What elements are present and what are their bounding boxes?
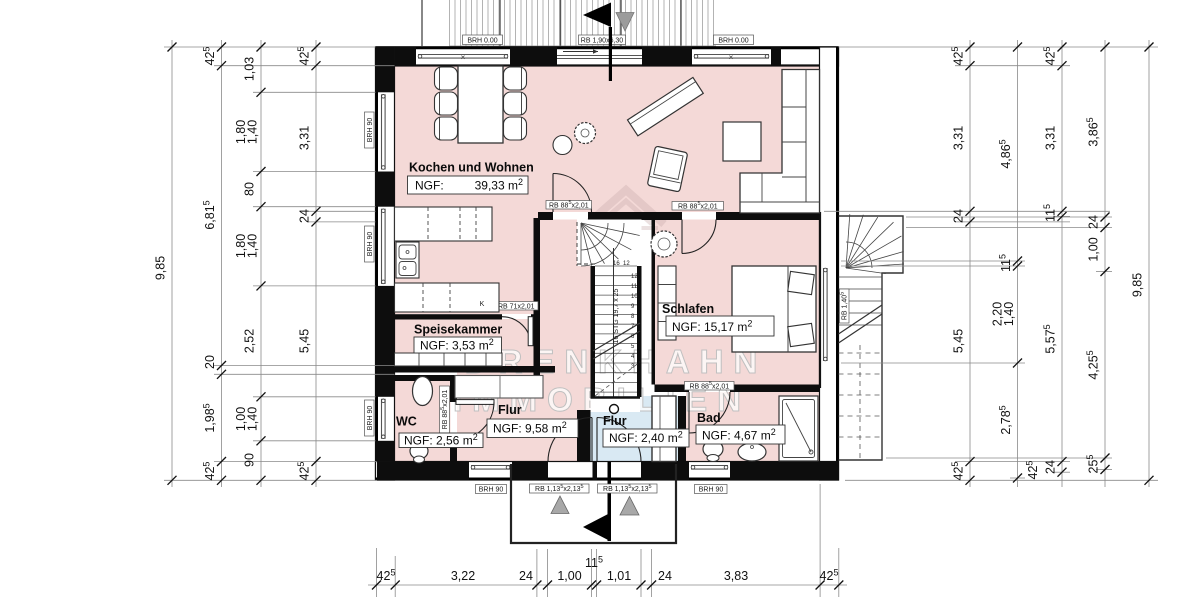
svg-text:24: 24: [519, 569, 533, 583]
svg-text:NGF: 9,58 m2: NGF: 9,58 m2: [493, 420, 567, 436]
svg-text:DRENKHAHN: DRENKHAHN: [465, 343, 768, 380]
svg-text:RB 1,90x6,30: RB 1,90x6,30: [581, 38, 624, 45]
svg-text:3,83: 3,83: [724, 569, 748, 583]
svg-text:5,45: 5,45: [298, 329, 312, 353]
svg-text:12: 12: [623, 261, 630, 267]
svg-text:5,45: 5,45: [952, 329, 966, 353]
svg-text:3,22: 3,22: [451, 569, 475, 583]
svg-text:NGF: 15,17 m2: NGF: 15,17 m2: [672, 319, 752, 335]
svg-text:BRH 90: BRH 90: [367, 406, 374, 431]
svg-text:24: 24: [1044, 460, 1058, 474]
svg-text:×: ×: [461, 53, 466, 62]
svg-text:RB 1,405: RB 1,405: [839, 292, 848, 320]
svg-text:RB 1,135x2,135: RB 1,135x2,135: [535, 484, 584, 493]
svg-text:24: 24: [952, 209, 966, 223]
svg-text:1,40: 1,40: [1002, 302, 1016, 326]
svg-text:90: 90: [243, 453, 257, 467]
svg-text:16: 16: [613, 261, 620, 267]
svg-text:NGF:: NGF:: [415, 179, 444, 193]
svg-text:×: ×: [729, 53, 734, 62]
svg-text:1,40: 1,40: [246, 407, 260, 431]
svg-text:BRH 90: BRH 90: [367, 118, 374, 143]
svg-text:NGF: 2,56 m2: NGF: 2,56 m2: [404, 432, 478, 448]
svg-text:Flur: Flur: [603, 414, 627, 428]
svg-text:Flur: Flur: [498, 403, 522, 417]
svg-text:K: K: [480, 301, 485, 308]
svg-text:3,31: 3,31: [298, 126, 312, 150]
svg-text:1,40: 1,40: [246, 120, 260, 144]
svg-text:BRH 90: BRH 90: [367, 232, 374, 257]
svg-text:39,33 m2: 39,33 m2: [475, 177, 523, 193]
svg-text:16 STG 19,7 x 25: 16 STG 19,7 x 25: [613, 288, 620, 343]
svg-text:Bad: Bad: [697, 411, 721, 425]
svg-text:NGF: 2,40 m2: NGF: 2,40 m2: [609, 430, 683, 446]
svg-text:12: 12: [631, 274, 638, 280]
svg-text:BRH 90: BRH 90: [699, 487, 724, 494]
svg-text:BRH 0.00: BRH 0.00: [718, 38, 748, 45]
svg-text:WC: WC: [396, 415, 417, 429]
svg-text:Schlafen: Schlafen: [662, 302, 714, 316]
svg-text:Kochen und Wohnen: Kochen und Wohnen: [409, 161, 534, 175]
svg-text:9,85: 9,85: [154, 256, 168, 280]
svg-text:2,52: 2,52: [243, 329, 257, 353]
svg-text:9,85: 9,85: [1131, 273, 1145, 297]
svg-text:24: 24: [1087, 215, 1101, 229]
svg-text:11: 11: [631, 284, 638, 290]
svg-text:BRH 90: BRH 90: [479, 487, 504, 494]
svg-text:3,31: 3,31: [952, 126, 966, 150]
svg-text:80: 80: [243, 182, 257, 196]
svg-text:10: 10: [631, 294, 638, 300]
svg-text:24: 24: [298, 209, 312, 223]
svg-text:1,00: 1,00: [1087, 237, 1101, 261]
svg-text:BRH 0.00: BRH 0.00: [467, 38, 497, 45]
svg-text:RB 71x2,01: RB 71x2,01: [498, 303, 535, 310]
svg-text:RB 1,135x2,135: RB 1,135x2,135: [603, 484, 652, 493]
svg-text:3,31: 3,31: [1044, 126, 1058, 150]
svg-text:20: 20: [203, 355, 217, 369]
svg-text:24: 24: [658, 569, 672, 583]
svg-text:1,03: 1,03: [243, 57, 257, 81]
svg-text:NGF: 4,67 m2: NGF: 4,67 m2: [702, 427, 776, 443]
svg-text:1,01: 1,01: [607, 569, 631, 583]
svg-text:1,40: 1,40: [246, 234, 260, 258]
svg-text:NGF: 3,53 m2: NGF: 3,53 m2: [420, 337, 494, 353]
svg-text:Speisekammer: Speisekammer: [414, 323, 502, 337]
svg-text:1,00: 1,00: [557, 569, 581, 583]
